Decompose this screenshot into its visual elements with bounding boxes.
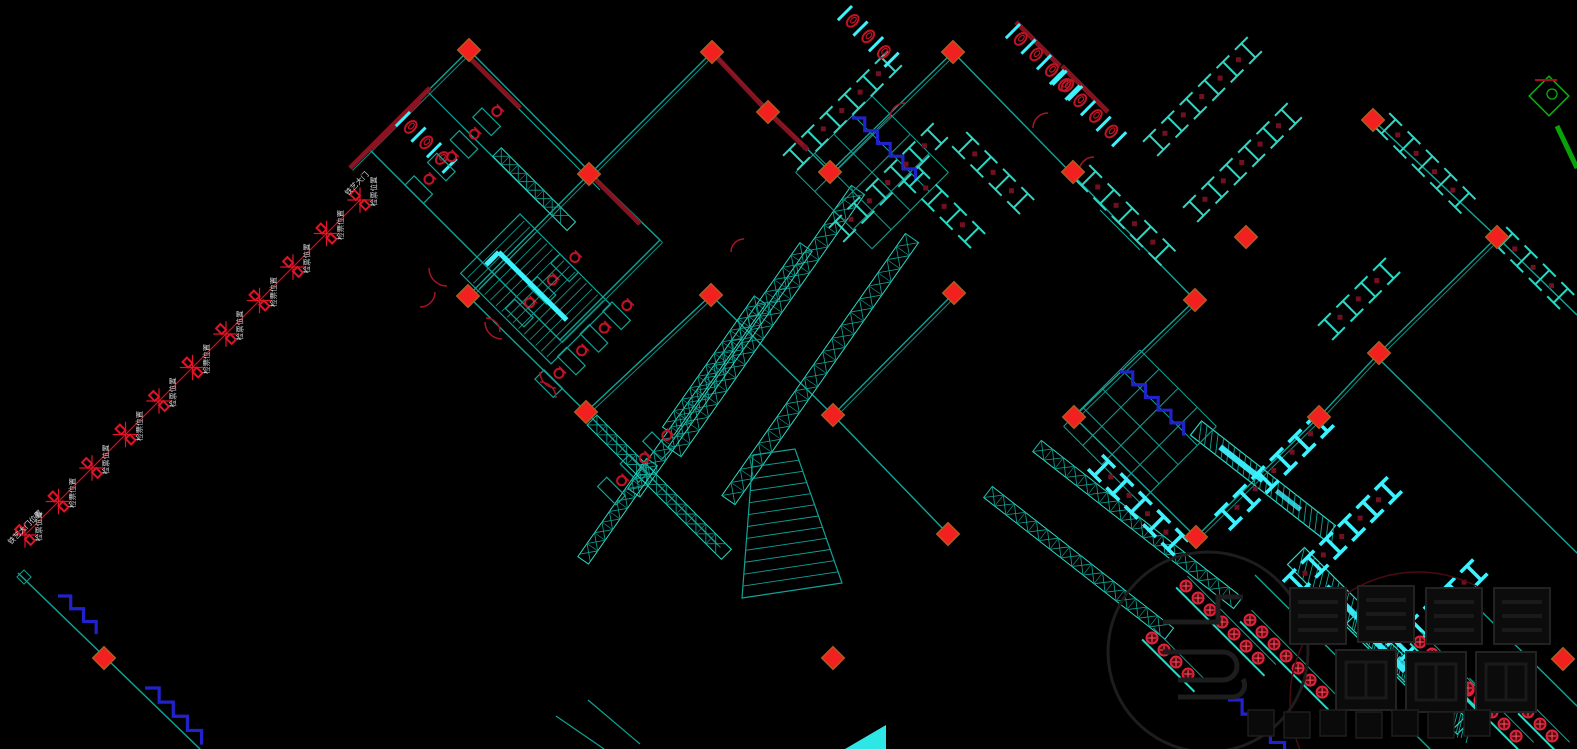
queue-label: 检票位置 <box>234 310 244 340</box>
cad-canvas[interactable]: 检票位置检票位置检票位置检票位置检票位置检票位置检票位置检票位置检票位置检票位置… <box>0 0 1577 749</box>
queue-label: 检票位置 <box>134 410 144 440</box>
cad-viewport[interactable]: 检票位置检票位置检票位置检票位置检票位置检票位置检票位置检票位置检票位置检票位置… <box>0 0 1577 749</box>
queue-label: 检票位置 <box>335 209 345 239</box>
queue-label: 检票位置 <box>268 276 278 306</box>
queue-label: 检票位置 <box>67 477 77 507</box>
queue-label: 检票位置 <box>100 444 110 474</box>
queue-label: 检票位置 <box>167 377 177 407</box>
queue-label: 检票位置 <box>301 243 311 273</box>
queue-label: 检票位置 <box>201 343 211 373</box>
queue-label: 检票位置 <box>368 176 378 206</box>
